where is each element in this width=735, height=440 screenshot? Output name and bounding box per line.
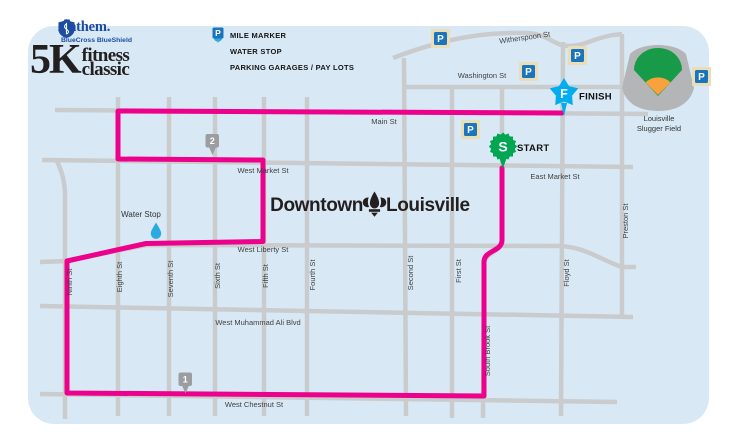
parking-letter: P: [574, 51, 581, 62]
street-label-ninth: Ninth St: [65, 268, 74, 296]
street-label-fourth: Fourth St: [308, 259, 317, 291]
street-label-floyd: Floyd St: [562, 258, 571, 286]
water-stop-label: Water Stop: [121, 210, 161, 219]
parking-letter: P: [525, 67, 532, 78]
mile-marker-number: 1: [183, 375, 188, 385]
legend-label-water-stop: WATER STOP: [230, 47, 282, 56]
parking-letter: P: [437, 34, 444, 45]
blueshield-icon: [58, 19, 75, 38]
street-label-washington: Washington St: [458, 71, 507, 80]
start-letter: S: [498, 139, 507, 155]
parking-icon-2: P: [519, 62, 538, 81]
street-label-south-brook: South Brook St: [483, 325, 492, 376]
slugger-field-icon: [622, 45, 694, 111]
map-legend: MILE MARKER WATER STOP P PARKING GARAGES…: [212, 27, 354, 75]
street-label-eighth: Eighth St: [115, 261, 124, 292]
event-5k: 5K: [30, 43, 80, 77]
event-name-line2: classic: [82, 63, 130, 77]
event-name: fitness classic: [82, 49, 130, 77]
street-label-first: First St: [454, 258, 463, 283]
street-label-fifth: Fifth St: [261, 263, 270, 288]
legend-row-parking: P PARKING GARAGES / PAY LOTS: [212, 59, 354, 75]
title-downtown: Downtown: [270, 195, 363, 216]
street-label-west-market: West Market St: [237, 166, 289, 175]
sponsor-brand-row: Anthem.: [58, 19, 110, 36]
landmark-label-line1: Louisville: [644, 114, 675, 123]
finish-label: FINISH: [579, 92, 612, 103]
start-label: START: [517, 143, 549, 154]
mile-marker-number: 2: [210, 136, 215, 146]
street-label-east-market: East Market St: [530, 172, 580, 181]
legend-row-mile-marker: MILE MARKER: [212, 27, 354, 43]
legend-row-water-stop: WATER STOP: [212, 43, 354, 59]
parking-icon-4: P: [461, 120, 480, 139]
parking-icon-5: P: [692, 67, 711, 86]
race-map-page: Witherspoon St Washington St Main St Wes…: [0, 0, 735, 440]
street-label-preston: Preston St: [621, 203, 630, 239]
parking-letter: P: [698, 72, 705, 83]
event-title: 5K fitness classic: [30, 43, 129, 77]
svg-text:P: P: [215, 28, 221, 38]
event-logo: Anthem. BlueCross BlueShield 5K fitness …: [30, 16, 160, 82]
street-label-seventh: Seventh St: [166, 260, 175, 298]
street-label-west-liberty: West Liberty St: [238, 245, 290, 254]
street-label-main: Main St: [371, 117, 397, 126]
parking-icon-3: P: [568, 46, 587, 65]
legend-label-mile-marker: MILE MARKER: [230, 31, 286, 40]
finish-letter: F: [560, 87, 568, 101]
street-label-muhammad-ali: West Muhammad Ali Blvd: [215, 318, 300, 327]
landmark-label-line2: Slugger Field: [637, 124, 681, 133]
parking-icon-1: P: [431, 29, 450, 48]
parking-letter: P: [467, 125, 474, 136]
legend-label-parking: PARKING GARAGES / PAY LOTS: [230, 63, 354, 72]
street-label-second: Second St: [406, 255, 415, 291]
title-louisville: Louisville: [386, 195, 470, 216]
street-label-sixth: Sixth St: [213, 262, 222, 289]
street-label-west-chestnut: West Chestnut St: [225, 400, 284, 409]
